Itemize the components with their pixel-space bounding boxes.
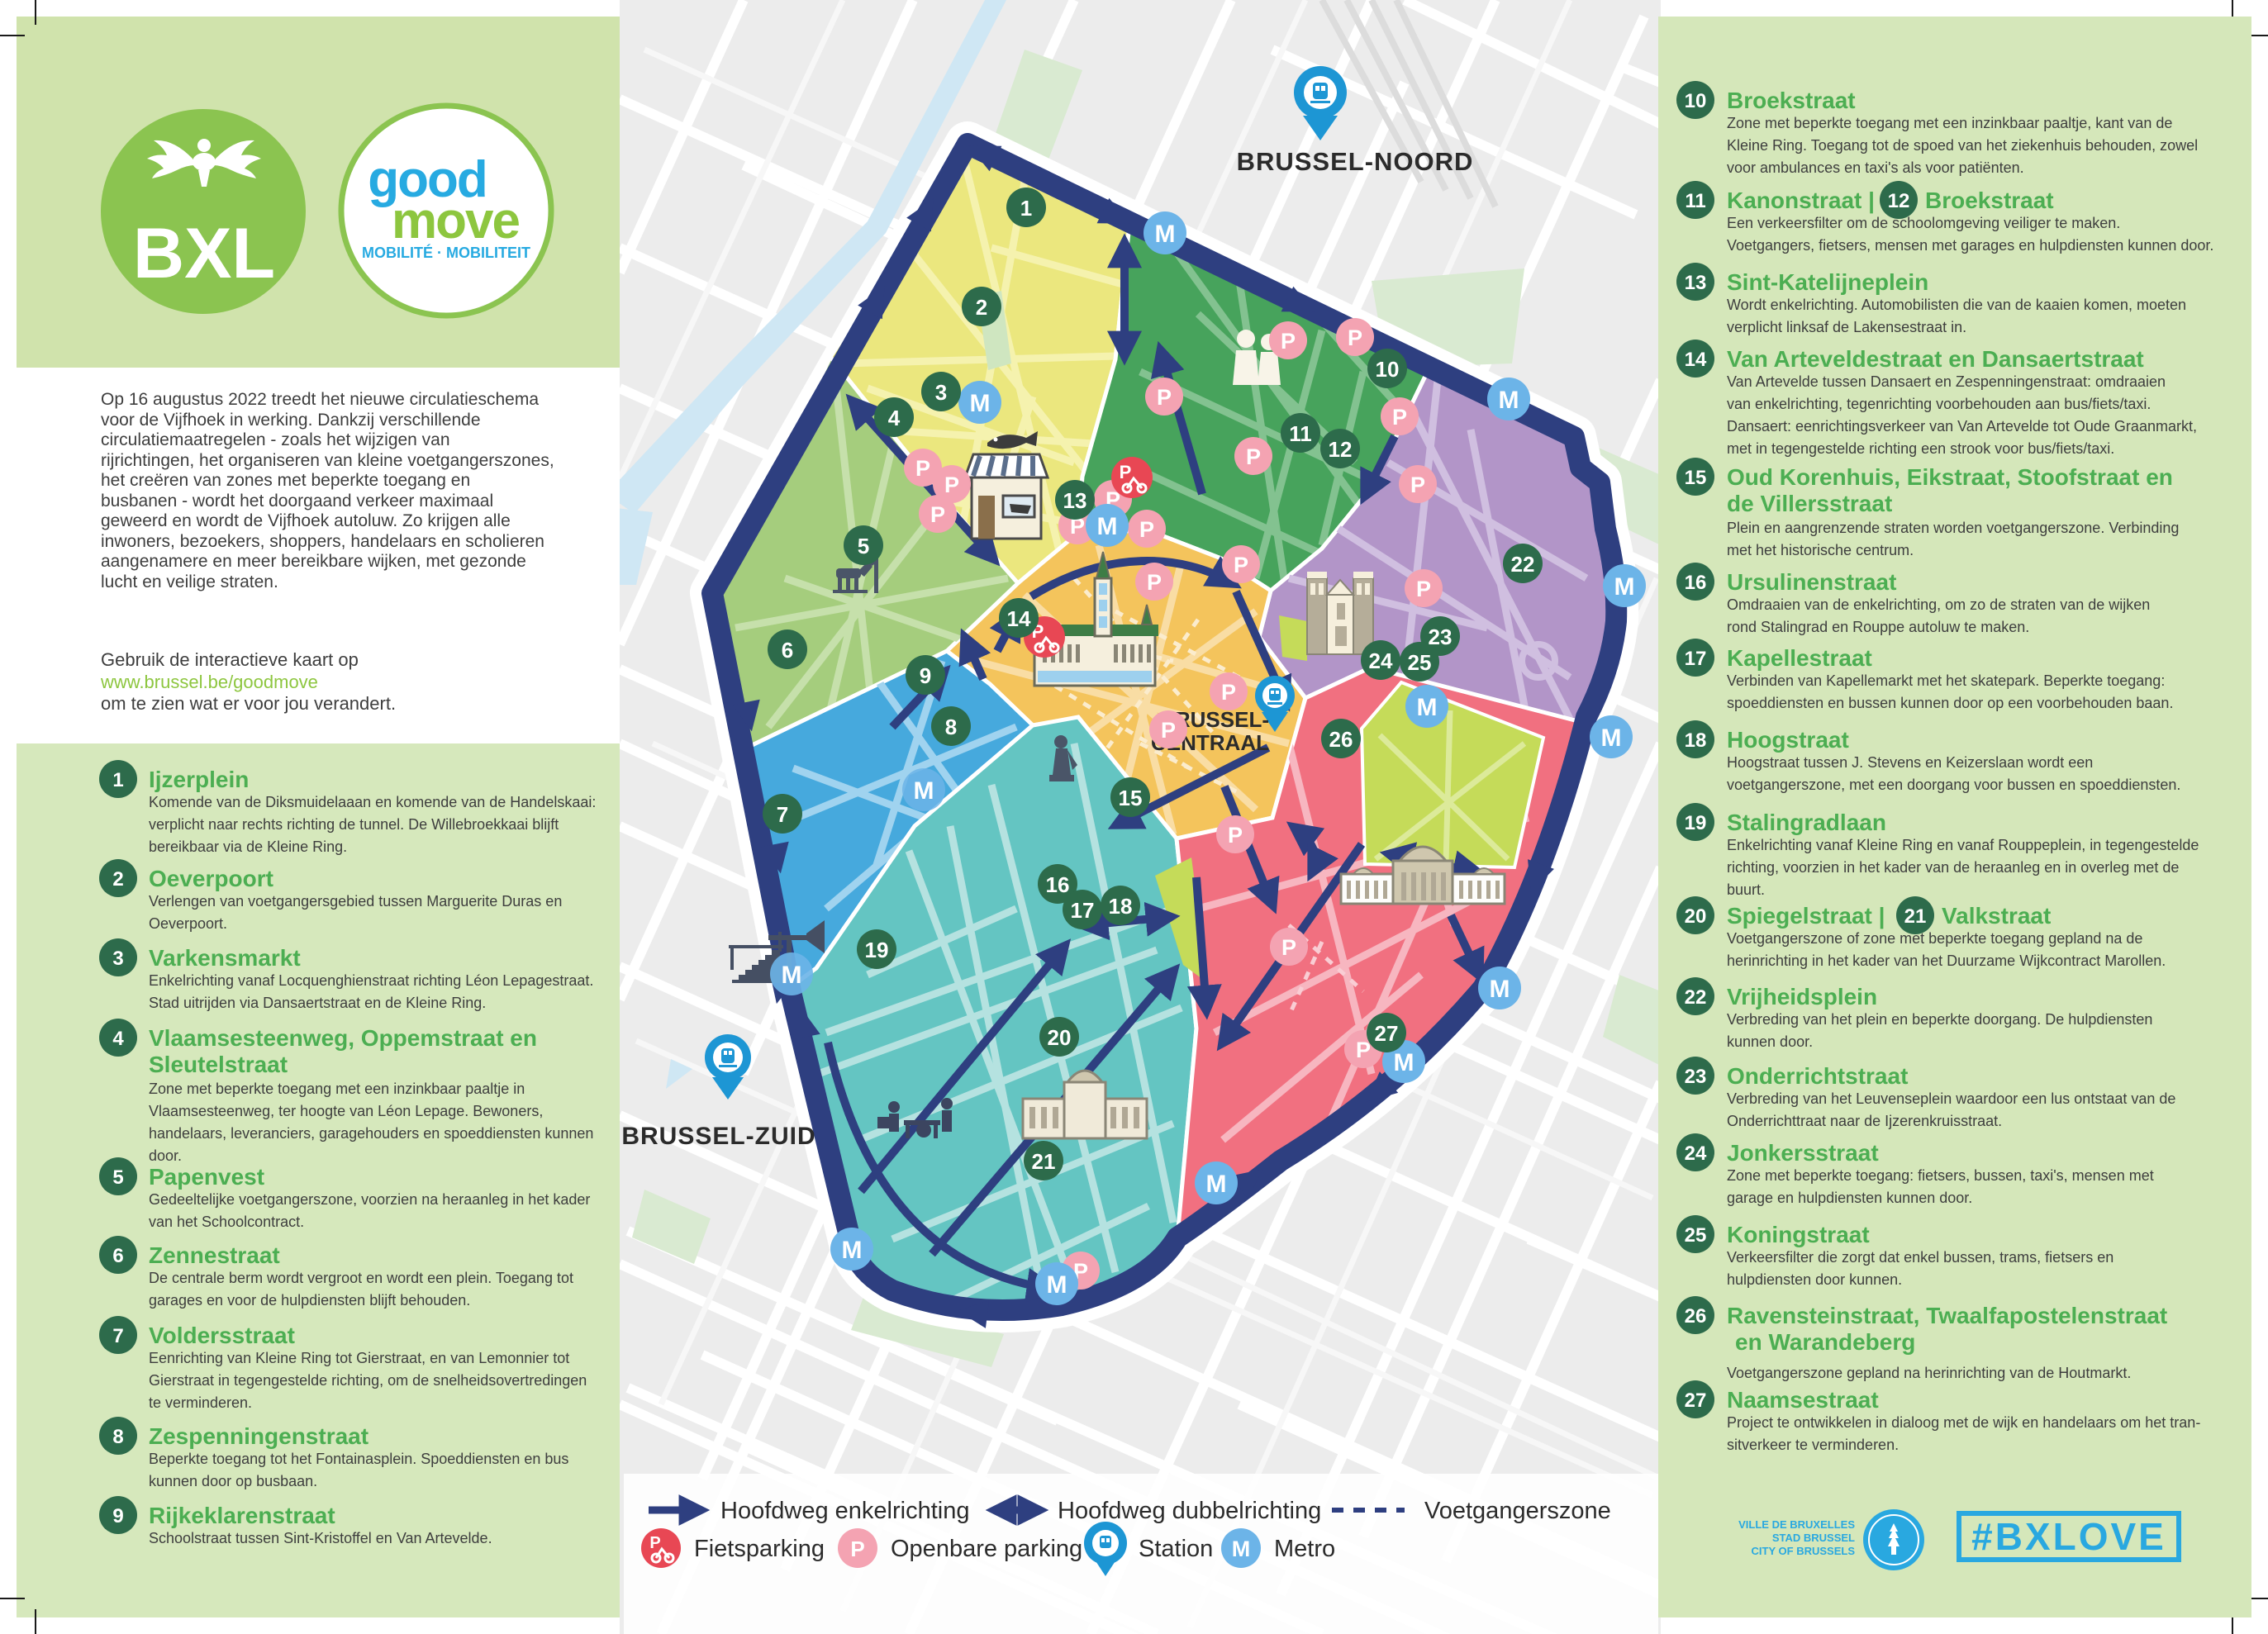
svg-text:16: 16 <box>1685 572 1707 594</box>
svg-text:8: 8 <box>945 715 957 739</box>
svg-text:Broekstraat: Broekstraat <box>1727 88 1856 113</box>
svg-text:25: 25 <box>1408 650 1432 675</box>
svg-text:Hoogstraat: Hoogstraat <box>1727 727 1849 753</box>
svg-text:BRUSSEL-ZUID: BRUSSEL-ZUID <box>621 1123 815 1150</box>
svg-text:M: M <box>842 1237 863 1264</box>
svg-text:17: 17 <box>1071 898 1095 923</box>
svg-text:24: 24 <box>1685 1142 1707 1165</box>
svg-text:move: move <box>392 192 519 249</box>
svg-text:14: 14 <box>1007 606 1031 631</box>
svg-text:Onderrichttraat naar de Ijzere: Onderrichttraat naar de Ijzerenkruisstra… <box>1727 1113 2002 1129</box>
svg-text:Naamsestraat: Naamsestraat <box>1727 1387 1879 1413</box>
svg-text:1: 1 <box>1020 196 1032 221</box>
svg-text:Voetgangerszone gepland na her: Voetgangerszone gepland na herinrichting… <box>1727 1365 2131 1381</box>
svg-text:voor de Vijfhoek in werking. D: voor de Vijfhoek in werking. Dankzij ver… <box>101 411 481 430</box>
svg-text:20: 20 <box>1048 1025 1072 1050</box>
svg-text:Vlaamsesteenweg, ter hoogte va: Vlaamsesteenweg, ter hoogte van Léon Lep… <box>149 1103 543 1119</box>
svg-text:Spiegelstraat |: Spiegelstraat | <box>1727 903 1885 929</box>
svg-text:7: 7 <box>112 1325 123 1347</box>
svg-text:21: 21 <box>1904 905 1927 928</box>
svg-text:10: 10 <box>1376 357 1400 382</box>
svg-text:18: 18 <box>1109 894 1133 919</box>
svg-text:Voetgangerszone: Voetgangerszone <box>1424 1498 1611 1524</box>
svg-text:bereikbaar via de Kleine Ring.: bereikbaar via de Kleine Ring. <box>149 838 347 855</box>
svg-text:P: P <box>850 1537 864 1561</box>
svg-text:P: P <box>1147 570 1162 595</box>
svg-text:26: 26 <box>1329 727 1353 752</box>
svg-text:8: 8 <box>112 1426 123 1448</box>
svg-text:9: 9 <box>920 663 931 688</box>
svg-text:Sleutelstraat: Sleutelstraat <box>149 1052 288 1077</box>
svg-text:Fietsparking: Fietsparking <box>694 1536 825 1562</box>
svg-text:Koningstraat: Koningstraat <box>1727 1222 1870 1247</box>
svg-text:Kapellestraat: Kapellestraat <box>1727 645 1872 671</box>
svg-text:Wordt enkelrichting. Automobil: Wordt enkelrichting. Automobilisten die … <box>1727 297 2186 313</box>
svg-text:26: 26 <box>1685 1305 1707 1328</box>
svg-text:Gedeeltelijke voetgangerszone,: Gedeeltelijke voetgangerszone, voorzien … <box>149 1191 590 1208</box>
svg-text:herinrichting in het kader van: herinrichting in het kader van het Duurz… <box>1727 952 2166 969</box>
svg-text:18: 18 <box>1685 729 1707 752</box>
svg-text:Hoogstraat tussen J. Stevens e: Hoogstraat tussen J. Stevens en Keizersl… <box>1727 754 2093 771</box>
svg-text:P: P <box>1120 462 1132 482</box>
svg-text:Verbreding van het plein en be: Verbreding van het plein en beperkte doo… <box>1727 1011 2152 1028</box>
svg-text:verplicht linksaf de Lakensest: verplicht linksaf de Lakensestraat in. <box>1727 319 1966 335</box>
svg-text:Oeverpoort: Oeverpoort <box>149 866 273 891</box>
svg-text:om te zien wat er voor jou ver: om te zien wat er voor jou verandert. <box>101 693 396 714</box>
svg-text:M: M <box>1614 573 1635 601</box>
svg-text:spoeddiensten en bussen kunnen: spoeddiensten en bussen kunnen door op e… <box>1727 695 2173 711</box>
svg-text:M: M <box>1490 976 1510 1003</box>
svg-text:Ursulinenstraat: Ursulinenstraat <box>1727 569 1896 595</box>
svg-text:6: 6 <box>112 1245 123 1267</box>
svg-text:Hoofdweg dubbelrichting: Hoofdweg dubbelrichting <box>1058 1498 1321 1524</box>
svg-text:Kleine Ring. Toegang tot de sp: Kleine Ring. Toegang tot de spoed van he… <box>1727 137 2198 154</box>
svg-text:Rijkeklarenstraat: Rijkeklarenstraat <box>149 1503 335 1528</box>
svg-text:M: M <box>914 777 934 805</box>
svg-text:M: M <box>1394 1049 1415 1076</box>
svg-text:Onderrichtstraat: Onderrichtstraat <box>1727 1063 1908 1089</box>
svg-text:kunnen door.: kunnen door. <box>1727 1033 1813 1050</box>
svg-text:P: P <box>1356 1038 1371 1062</box>
svg-text:P: P <box>1246 444 1261 469</box>
svg-text:#BXLOVE: #BXLOVE <box>1971 1515 2166 1558</box>
svg-text:23: 23 <box>1685 1066 1707 1088</box>
svg-text:3: 3 <box>112 948 123 970</box>
svg-text:Sint-Katelijneplein: Sint-Katelijneplein <box>1727 269 1928 295</box>
svg-text:P: P <box>1221 680 1236 705</box>
svg-text:4: 4 <box>112 1028 124 1050</box>
svg-text:P: P <box>944 473 959 497</box>
svg-text:van enkelrichting, tegenrichti: van enkelrichting, tegenrichting voorbeh… <box>1727 396 2151 412</box>
svg-text:P: P <box>1281 935 1296 960</box>
svg-text:Hoofdweg enkelrichting: Hoofdweg enkelrichting <box>720 1498 969 1524</box>
svg-text:Jonkersstraat: Jonkersstraat <box>1727 1140 1879 1166</box>
svg-text:busbanen - wordt het doorgaand: busbanen - wordt het doorgaand verkeer m… <box>101 492 493 511</box>
svg-text:12: 12 <box>1888 190 1910 212</box>
svg-text:van het Schoolcontract.: van het Schoolcontract. <box>149 1214 304 1230</box>
svg-text:16: 16 <box>1046 872 1070 897</box>
svg-text:14: 14 <box>1685 349 1707 371</box>
svg-text:www.brussel.be/goodmove: www.brussel.be/goodmove <box>100 672 318 692</box>
svg-text:aangenamere en meer bereikbare: aangenamere en meer bereikbare wijken, m… <box>101 552 526 571</box>
svg-text:Station: Station <box>1139 1536 1213 1562</box>
svg-text:CITY OF BRUSSELS: CITY OF BRUSSELS <box>1752 1545 1856 1557</box>
svg-text:STAD BRUSSEL: STAD BRUSSEL <box>1772 1532 1855 1544</box>
svg-text:Stalingradlaan: Stalingradlaan <box>1727 810 1886 835</box>
svg-text:handelaars, leveranciers, gara: handelaars, leveranciers, garagehouders … <box>149 1125 593 1142</box>
svg-text:BXL: BXL <box>133 214 275 293</box>
svg-text:VILLE DE BRUXELLES: VILLE DE BRUXELLES <box>1738 1518 1855 1531</box>
svg-text:Metro: Metro <box>1274 1536 1335 1562</box>
svg-text:P: P <box>1234 553 1248 577</box>
svg-text:voor ambulances en taxi's als: voor ambulances en taxi's als voor patië… <box>1727 159 2024 176</box>
svg-text:Voldersstraat: Voldersstraat <box>149 1323 295 1348</box>
svg-text:Valkstraat: Valkstraat <box>1942 903 2051 929</box>
svg-text:garage en hulpdiensten kunnen: garage en hulpdiensten kunnen door. <box>1727 1190 1972 1206</box>
svg-text:Vrijheidsplein: Vrijheidsplein <box>1727 984 1877 1009</box>
svg-text:met in tegengestelde richting: met in tegengestelde richting een strook… <box>1727 440 2114 457</box>
svg-text:P: P <box>930 502 945 527</box>
svg-text:21: 21 <box>1032 1149 1056 1174</box>
svg-text:P: P <box>649 1534 660 1552</box>
svg-text:23: 23 <box>1429 625 1453 649</box>
svg-text:Zennestraat: Zennestraat <box>149 1242 280 1268</box>
svg-text:door.: door. <box>149 1147 182 1164</box>
svg-text:buurt.: buurt. <box>1727 881 1765 898</box>
svg-text:rijrichtingen, het organiseren: rijrichtingen, het organiseren van klein… <box>101 451 554 470</box>
svg-text:Een verkeersfilter om de schoo: Een verkeersfilter om de schoolomgeving … <box>1727 215 2120 231</box>
svg-text:Ijzerplein: Ijzerplein <box>149 767 249 792</box>
svg-text:5: 5 <box>858 534 869 558</box>
svg-text:Verlengen van voetgangersgebie: Verlengen van voetgangersgebied tussen M… <box>149 893 562 910</box>
svg-text:10: 10 <box>1685 90 1707 112</box>
svg-text:Schoolstraat tussen Sint-Krist: Schoolstraat tussen Sint-Kristoffel en V… <box>149 1530 492 1546</box>
svg-text:Vlaamsesteenweg, Oppemstraat e: Vlaamsesteenweg, Oppemstraat en <box>149 1025 537 1051</box>
svg-text:Verbreding van het Leuvenseple: Verbreding van het Leuvenseplein waardoo… <box>1727 1090 2175 1107</box>
svg-text:20: 20 <box>1685 905 1707 928</box>
svg-text:garages en voor de hulpdienste: garages en voor de hulpdiensten blijft b… <box>149 1292 470 1309</box>
svg-text:22: 22 <box>1685 986 1707 1009</box>
svg-text:13: 13 <box>1685 272 1707 294</box>
svg-text:geweerd en wordt de Vijfhoek a: geweerd en wordt de Vijfhoek autoluw. Zo… <box>101 511 511 530</box>
svg-text:19: 19 <box>1685 812 1707 834</box>
svg-text:6: 6 <box>782 638 793 663</box>
svg-text:MOBILITÉ · MOBILITEIT: MOBILITÉ · MOBILITEIT <box>362 244 530 261</box>
svg-text:11: 11 <box>1685 190 1705 212</box>
svg-text:rond Stalingrad en Rouppe auto: rond Stalingrad en Rouppe autoluw te mak… <box>1727 619 2029 635</box>
svg-text:9: 9 <box>112 1505 123 1527</box>
svg-text:M: M <box>1417 694 1438 721</box>
svg-text:19: 19 <box>865 938 889 962</box>
svg-text:Voetgangers, fietsers, mensen: Voetgangers, fietsers, mensen met garage… <box>1727 237 2213 254</box>
svg-text:M: M <box>1047 1271 1067 1299</box>
svg-text:Enkelrichting vanaf Kleine Rin: Enkelrichting vanaf Kleine Ring en vanaf… <box>1727 837 2199 853</box>
svg-text:Op 16 augustus 2022 treedt het: Op 16 augustus 2022 treedt het nieuwe ci… <box>101 390 539 409</box>
svg-text:7: 7 <box>777 802 788 827</box>
svg-text:P: P <box>915 456 930 481</box>
svg-text:Varkensmarkt: Varkensmarkt <box>149 945 301 971</box>
svg-text:Stad uitrijden via Dansaertstr: Stad uitrijden via Dansaertstraat en de … <box>149 995 486 1011</box>
svg-text:Verbinden van Kapellemarkt met: Verbinden van Kapellemarkt met het skate… <box>1727 672 2165 689</box>
svg-text:27: 27 <box>1685 1389 1707 1412</box>
svg-text:Van Artevelde tussen Dansaert: Van Artevelde tussen Dansaert en Zespenn… <box>1727 373 2166 390</box>
svg-text:Project te ontwikkelen in dial: Project te ontwikkelen in dialoog met de… <box>1727 1414 2200 1431</box>
svg-text:P: P <box>1281 329 1296 354</box>
svg-text:22: 22 <box>1511 552 1535 577</box>
svg-text:BRUSSEL-NOORD: BRUSSEL-NOORD <box>1237 147 1474 176</box>
svg-text:M: M <box>1206 1171 1227 1198</box>
svg-text:Verkeersfilter die zorgt dat e: Verkeersfilter die zorgt dat enkel busse… <box>1727 1249 2113 1266</box>
svg-text:P: P <box>1139 517 1154 542</box>
svg-text:Zone met beperkte toegang met: Zone met beperkte toegang met een inzink… <box>149 1081 525 1097</box>
svg-text:M: M <box>1155 221 1176 248</box>
svg-text:Kanonstraat |: Kanonstraat | <box>1727 188 1875 213</box>
svg-text:P: P <box>1161 718 1176 743</box>
svg-text:2: 2 <box>976 295 987 320</box>
svg-text:Van Arteveldestraat en Dansaer: Van Arteveldestraat en Dansaertstraat <box>1727 346 2144 372</box>
svg-text:24: 24 <box>1369 648 1393 673</box>
svg-text:P: P <box>1228 823 1243 848</box>
svg-text:P: P <box>1410 473 1425 497</box>
svg-text:P: P <box>1416 577 1431 601</box>
svg-text:M: M <box>1601 724 1622 752</box>
svg-text:12: 12 <box>1329 437 1353 462</box>
svg-text:en Warandeberg: en Warandeberg <box>1735 1329 1915 1355</box>
svg-text:het creëren van zones met bepe: het creëren van zones met beperkte toega… <box>101 471 470 490</box>
svg-text:1: 1 <box>112 769 123 791</box>
svg-text:Beperkte toegang tot het Fonta: Beperkte toegang tot het Fontainasplein.… <box>149 1451 568 1467</box>
svg-text:Ravensteinstraat, Twaalfaposte: Ravensteinstraat, Twaalfapostelenstraat <box>1727 1303 2167 1328</box>
svg-text:verplicht naar rechts richting: verplicht naar rechts richting de tunnel… <box>149 816 559 833</box>
svg-text:11: 11 <box>1289 421 1312 446</box>
svg-text:De centrale berm wordt vergroo: De centrale berm wordt vergroot en wordt… <box>149 1270 573 1286</box>
svg-text:27: 27 <box>1375 1021 1399 1046</box>
svg-text:M: M <box>970 390 991 417</box>
svg-text:Dansaert: eenrichtingsverkeer: Dansaert: eenrichtingsverkeer van Van Ar… <box>1727 418 2197 435</box>
svg-text:Papenvest: Papenvest <box>149 1164 264 1190</box>
svg-text:Zone met beperkte toegang met: Zone met beperkte toegang met een inzink… <box>1727 115 2172 131</box>
svg-text:Gierstraat in tegengestelde ri: Gierstraat in tegengestelde richting, om… <box>149 1372 587 1389</box>
svg-text:Gebruik de interactieve kaart: Gebruik de interactieve kaart op <box>101 649 359 670</box>
svg-text:circulatiemaatregelen - zoals: circulatiemaatregelen - zoals het wijzig… <box>101 430 450 449</box>
svg-text:Omdraaien van de enkelrichting: Omdraaien van de enkelrichting, om zo de… <box>1727 596 2150 613</box>
svg-text:P: P <box>1348 325 1362 350</box>
svg-text:hulpdiensten door kunnen.: hulpdiensten door kunnen. <box>1727 1271 1902 1288</box>
svg-text:15: 15 <box>1119 786 1143 810</box>
svg-text:Eenrichting van Kleine Ring to: Eenrichting van Kleine Ring tot Gierstra… <box>149 1350 569 1366</box>
svg-text:sitverkeer te verminderen.: sitverkeer te verminderen. <box>1727 1437 1899 1453</box>
svg-text:inwoners, bezoekers, shoppers,: inwoners, bezoekers, shoppers, handelaar… <box>101 532 544 551</box>
svg-text:Plein en aangrenzende straten: Plein en aangrenzende straten worden voe… <box>1727 520 2179 536</box>
svg-text:M: M <box>1097 513 1118 540</box>
svg-text:3: 3 <box>935 380 947 405</box>
svg-text:17: 17 <box>1685 648 1707 670</box>
svg-text:P: P <box>1157 385 1172 410</box>
svg-text:5: 5 <box>112 1166 123 1189</box>
svg-text:Broekstraat: Broekstraat <box>1925 188 2054 213</box>
svg-text:Enkelrichting vanaf Locquenghi: Enkelrichting vanaf Locquenghienstraat r… <box>149 972 593 989</box>
svg-text:lucht en veilige straten.: lucht en veilige straten. <box>101 572 278 591</box>
svg-text:M: M <box>1232 1537 1251 1561</box>
svg-text:13: 13 <box>1063 488 1087 513</box>
svg-text:Openbare parking: Openbare parking <box>891 1536 1082 1562</box>
svg-text:M: M <box>1499 387 1519 414</box>
svg-text:kunnen door op busbaan.: kunnen door op busbaan. <box>149 1473 317 1489</box>
svg-text:M: M <box>782 962 802 989</box>
svg-text:met het historische centrum.: met het historische centrum. <box>1727 542 1914 558</box>
svg-text:2: 2 <box>112 868 123 891</box>
svg-text:richting, voorzien in het kade: richting, voorzien in het kader van de h… <box>1727 859 2179 876</box>
svg-text:15: 15 <box>1685 467 1707 489</box>
svg-text:Zone met beperkte toegang: fie: Zone met beperkte toegang: fietsers, bus… <box>1727 1167 2154 1184</box>
svg-text:Zespenningenstraat: Zespenningenstraat <box>149 1423 368 1449</box>
svg-text:te verminderen.: te verminderen. <box>149 1394 252 1411</box>
svg-text:de Villersstraat: de Villersstraat <box>1727 491 1892 516</box>
svg-text:4: 4 <box>888 406 901 430</box>
svg-text:Komende van de Diksmuidelaaan: Komende van de Diksmuidelaaan en komende… <box>149 794 596 810</box>
svg-text:Oud Korenhuis, Eikstraat, Stoo: Oud Korenhuis, Eikstraat, Stoofstraat en <box>1727 464 2173 490</box>
svg-text:Oeverpoort.: Oeverpoort. <box>149 915 227 932</box>
svg-text:P: P <box>1392 405 1407 430</box>
svg-text:Voetgangerszone of zone met be: Voetgangerszone of zone met beperkte toe… <box>1727 930 2142 947</box>
svg-text:25: 25 <box>1685 1224 1707 1247</box>
svg-text:voetgangerszone, met een doorg: voetgangerszone, met een doorgang voor b… <box>1727 777 2180 793</box>
